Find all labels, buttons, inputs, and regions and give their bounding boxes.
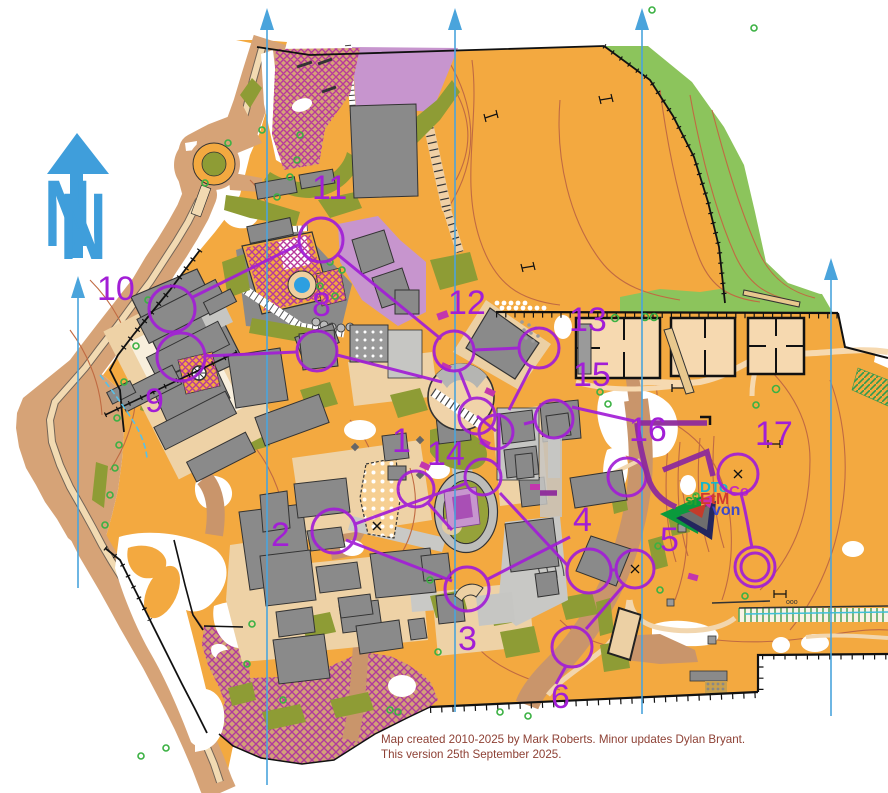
svg-text:4: 4	[573, 501, 592, 539]
svg-text:6: 6	[551, 678, 570, 716]
svg-text:11: 11	[312, 169, 347, 207]
svg-text:16: 16	[629, 411, 667, 449]
svg-text:14: 14	[427, 435, 465, 473]
svg-text:N: N	[60, 174, 107, 280]
svg-text:ooo: ooo	[786, 599, 798, 606]
svg-text:8: 8	[312, 286, 331, 324]
svg-text:von: von	[712, 502, 740, 519]
svg-text:3: 3	[458, 620, 477, 658]
svg-text:9: 9	[145, 382, 164, 420]
svg-text:13: 13	[569, 301, 607, 339]
svg-text:15: 15	[573, 356, 611, 394]
svg-text:2: 2	[271, 516, 290, 554]
svg-text:1: 1	[392, 422, 411, 460]
svg-text:5: 5	[660, 521, 679, 559]
svg-text:10: 10	[97, 270, 135, 308]
svg-text:This version 25th September 20: This version 25th September 2025.	[381, 748, 561, 761]
svg-text:17: 17	[755, 415, 793, 453]
svg-text:Map created 2010-2025 by Mark: Map created 2010-2025 by Mark Roberts. M…	[381, 733, 745, 746]
svg-text:12: 12	[448, 284, 486, 322]
svg-text:si: si	[685, 492, 698, 509]
